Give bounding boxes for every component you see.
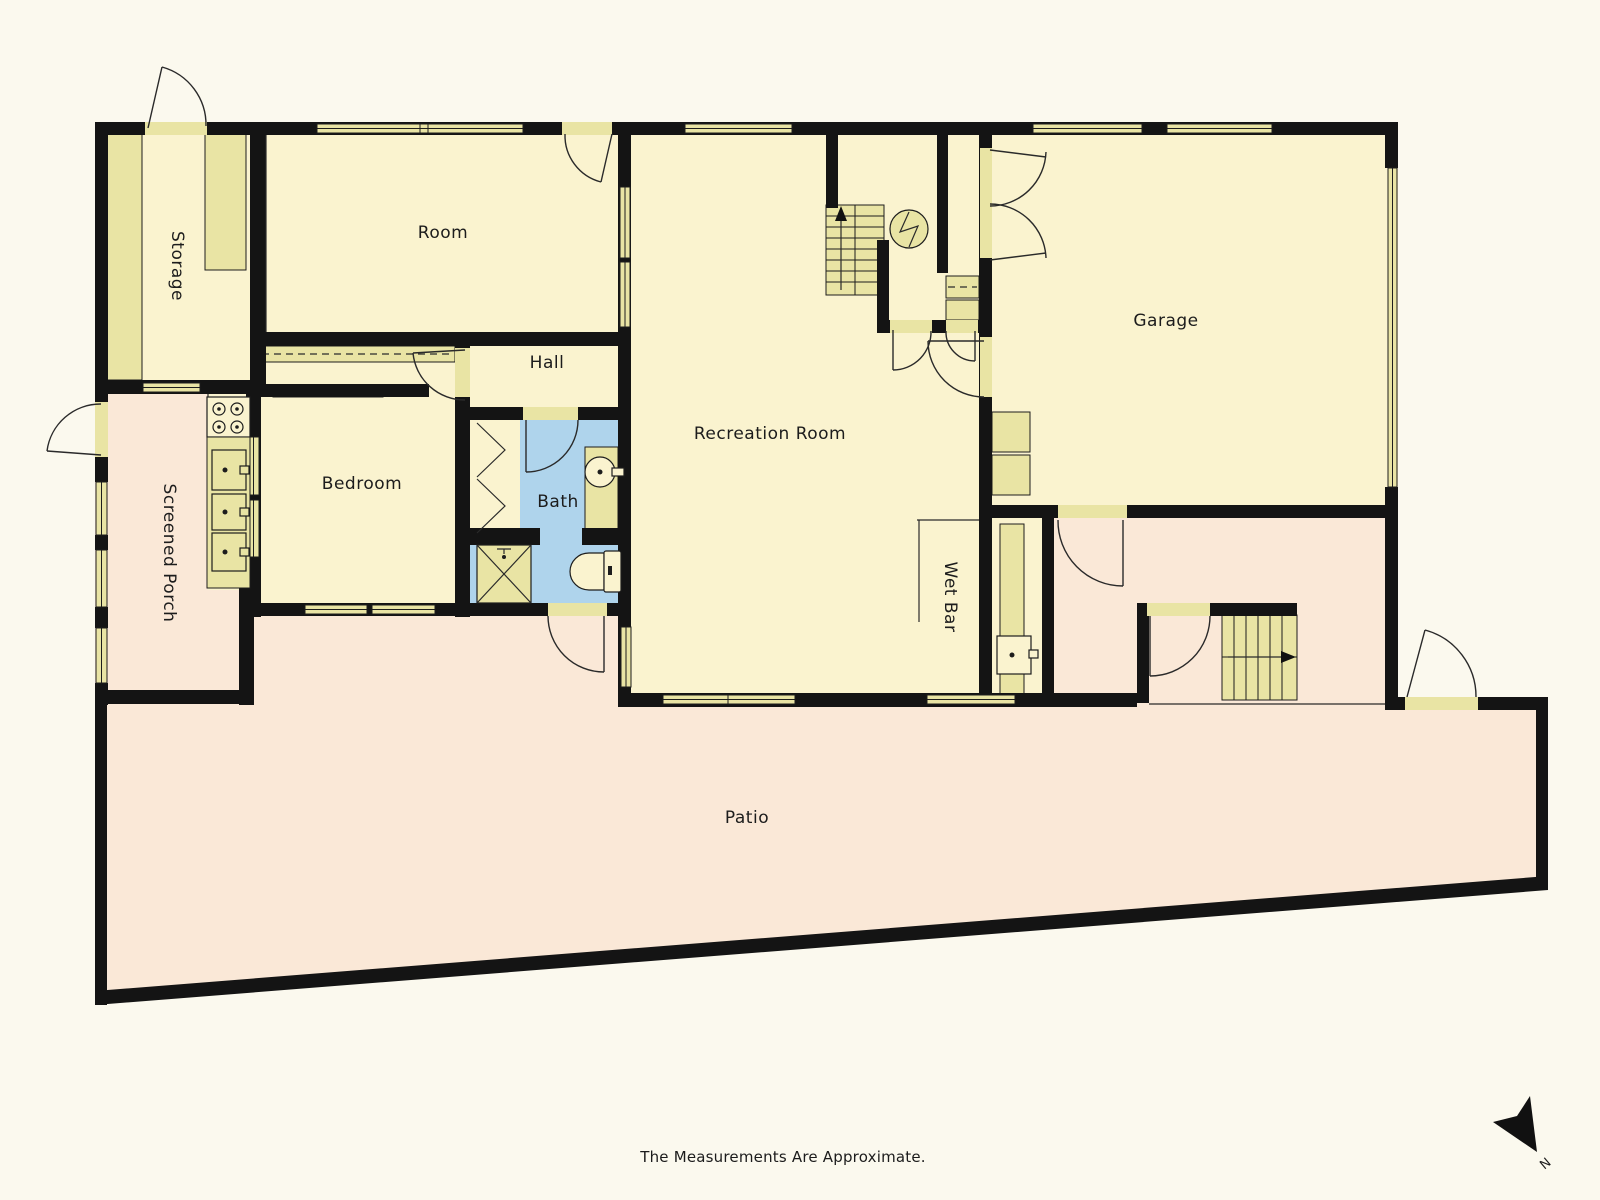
garage-cabinet: [992, 412, 1030, 452]
patio-exterior-door: [1407, 630, 1476, 697]
bath-closet-floor: [470, 420, 520, 530]
room-label-patio: Patio: [725, 808, 769, 828]
north-arrow-icon: [1493, 1096, 1537, 1152]
room-label-recreation: Recreation Room: [694, 424, 846, 444]
storage-shelf-2: [205, 133, 246, 270]
floor-plan: [0, 0, 1600, 1200]
vestibule-cabinet-2: [946, 300, 979, 320]
measurements-note: The Measurements Are Approximate.: [640, 1148, 926, 1166]
floor-fills: [95, 122, 1548, 1002]
room-label-wet-bar: Wet Bar: [940, 562, 960, 633]
storage-shelf: [106, 133, 142, 380]
stairs-up-icon: [826, 205, 884, 295]
room-label-garage: Garage: [1133, 311, 1198, 331]
kitchen-counter-icon: [207, 437, 250, 588]
furnace-icon: [890, 210, 928, 248]
stove-icon: [207, 397, 250, 437]
room-label-room: Room: [418, 223, 468, 243]
garage-cabinet-2: [992, 455, 1030, 495]
room-label-bath: Bath: [537, 492, 579, 512]
room-label-hall: Hall: [530, 353, 565, 373]
porch-entry-door: [47, 404, 101, 455]
room-label-screened-porch: Screened Porch: [159, 484, 179, 623]
toilet-icon: [570, 551, 621, 592]
room-label-bedroom: Bedroom: [322, 474, 402, 494]
storage-entry-door: [148, 67, 206, 128]
stairs-down-icon: [1222, 615, 1297, 700]
room-label-storage: Storage: [167, 231, 187, 301]
shower-icon: [477, 545, 531, 603]
